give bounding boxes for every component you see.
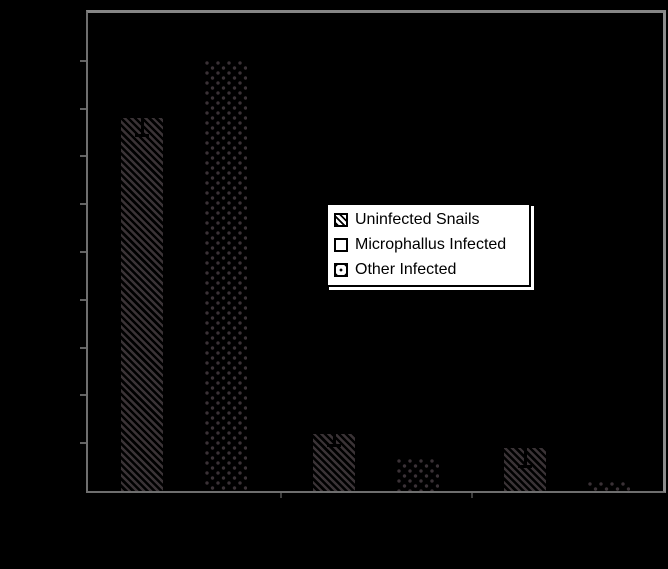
chart-canvas: { "canvas": { "background_color": "#0000… (0, 0, 668, 569)
legend-item-uninfected-snails: Uninfected Snails (334, 212, 523, 228)
y-axis-tick (80, 60, 86, 62)
error-bar-cap (518, 465, 532, 468)
bar-dots (588, 482, 630, 491)
x-axis-tick (471, 493, 473, 498)
y-axis-tick (80, 442, 86, 444)
legend-label: Uninfected Snails (355, 212, 480, 228)
bar-diagonal-hatch (121, 118, 163, 491)
y-axis-tick (80, 394, 86, 396)
y-axis-tick (80, 108, 86, 110)
bar-dots (397, 459, 439, 491)
y-axis-tick (80, 299, 86, 301)
diagonal-hatch-swatch-icon (334, 213, 348, 227)
y-axis-tick (80, 251, 86, 253)
y-axis-tick (80, 203, 86, 205)
legend: Uninfected Snails Microphallus Infected … (326, 203, 531, 287)
dotted-swatch-icon (334, 263, 348, 277)
legend-label: Microphallus Infected (355, 237, 506, 253)
y-axis-tick (80, 347, 86, 349)
error-bar-cap (327, 444, 341, 447)
error-bar-cap (135, 134, 149, 137)
empty-square-swatch-icon (334, 238, 348, 252)
legend-label: Other Infected (355, 262, 456, 278)
legend-item-other-infected: Other Infected (334, 262, 523, 278)
bar-dots (205, 61, 247, 491)
y-axis-tick (80, 155, 86, 157)
legend-item-microphallus-infected: Microphallus Infected (334, 237, 523, 253)
x-axis-tick (280, 493, 282, 498)
